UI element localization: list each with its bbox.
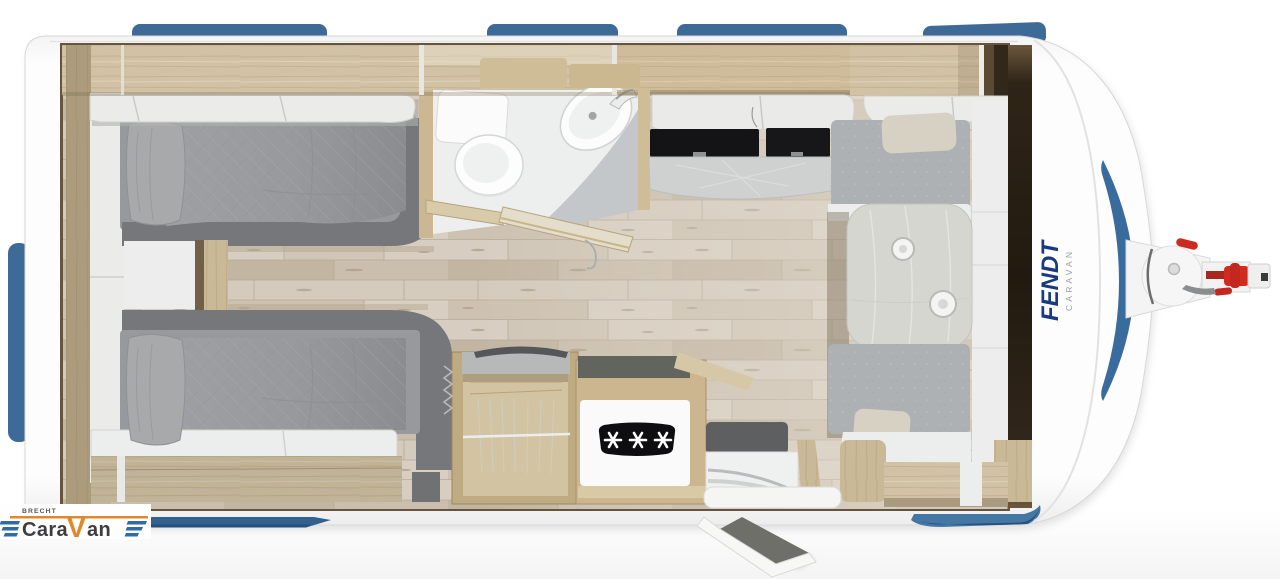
svg-text:CARAVAN: CARAVAN: [1064, 249, 1074, 311]
svg-text:BRECHT: BRECHT: [22, 508, 57, 515]
svg-text:FENDT: FENDT: [1037, 239, 1064, 321]
svg-text:Cara: Cara: [22, 519, 69, 541]
svg-text:V: V: [67, 512, 86, 543]
svg-text:an: an: [87, 519, 111, 541]
